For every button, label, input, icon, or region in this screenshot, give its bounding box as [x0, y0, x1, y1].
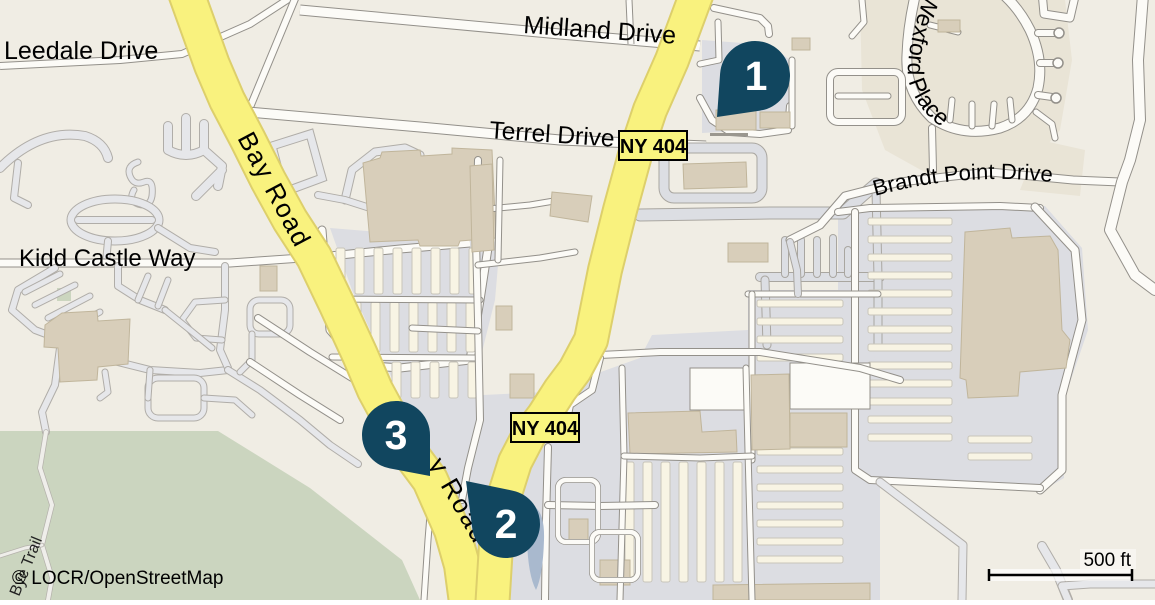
svg-text:2: 2: [495, 501, 518, 547]
svg-text:1: 1: [745, 53, 768, 99]
svg-text:© LOCR/OpenStreetMap: © LOCR/OpenStreetMap: [12, 568, 223, 589]
svg-text:NY 404: NY 404: [620, 136, 687, 158]
svg-text:Kidd Castle Way: Kidd Castle Way: [19, 245, 196, 272]
svg-text:Leedale Drive: Leedale Drive: [4, 37, 158, 65]
svg-text:500 ft: 500 ft: [1083, 550, 1131, 571]
svg-text:NY 404: NY 404: [512, 418, 579, 440]
svg-text:3: 3: [385, 412, 408, 458]
